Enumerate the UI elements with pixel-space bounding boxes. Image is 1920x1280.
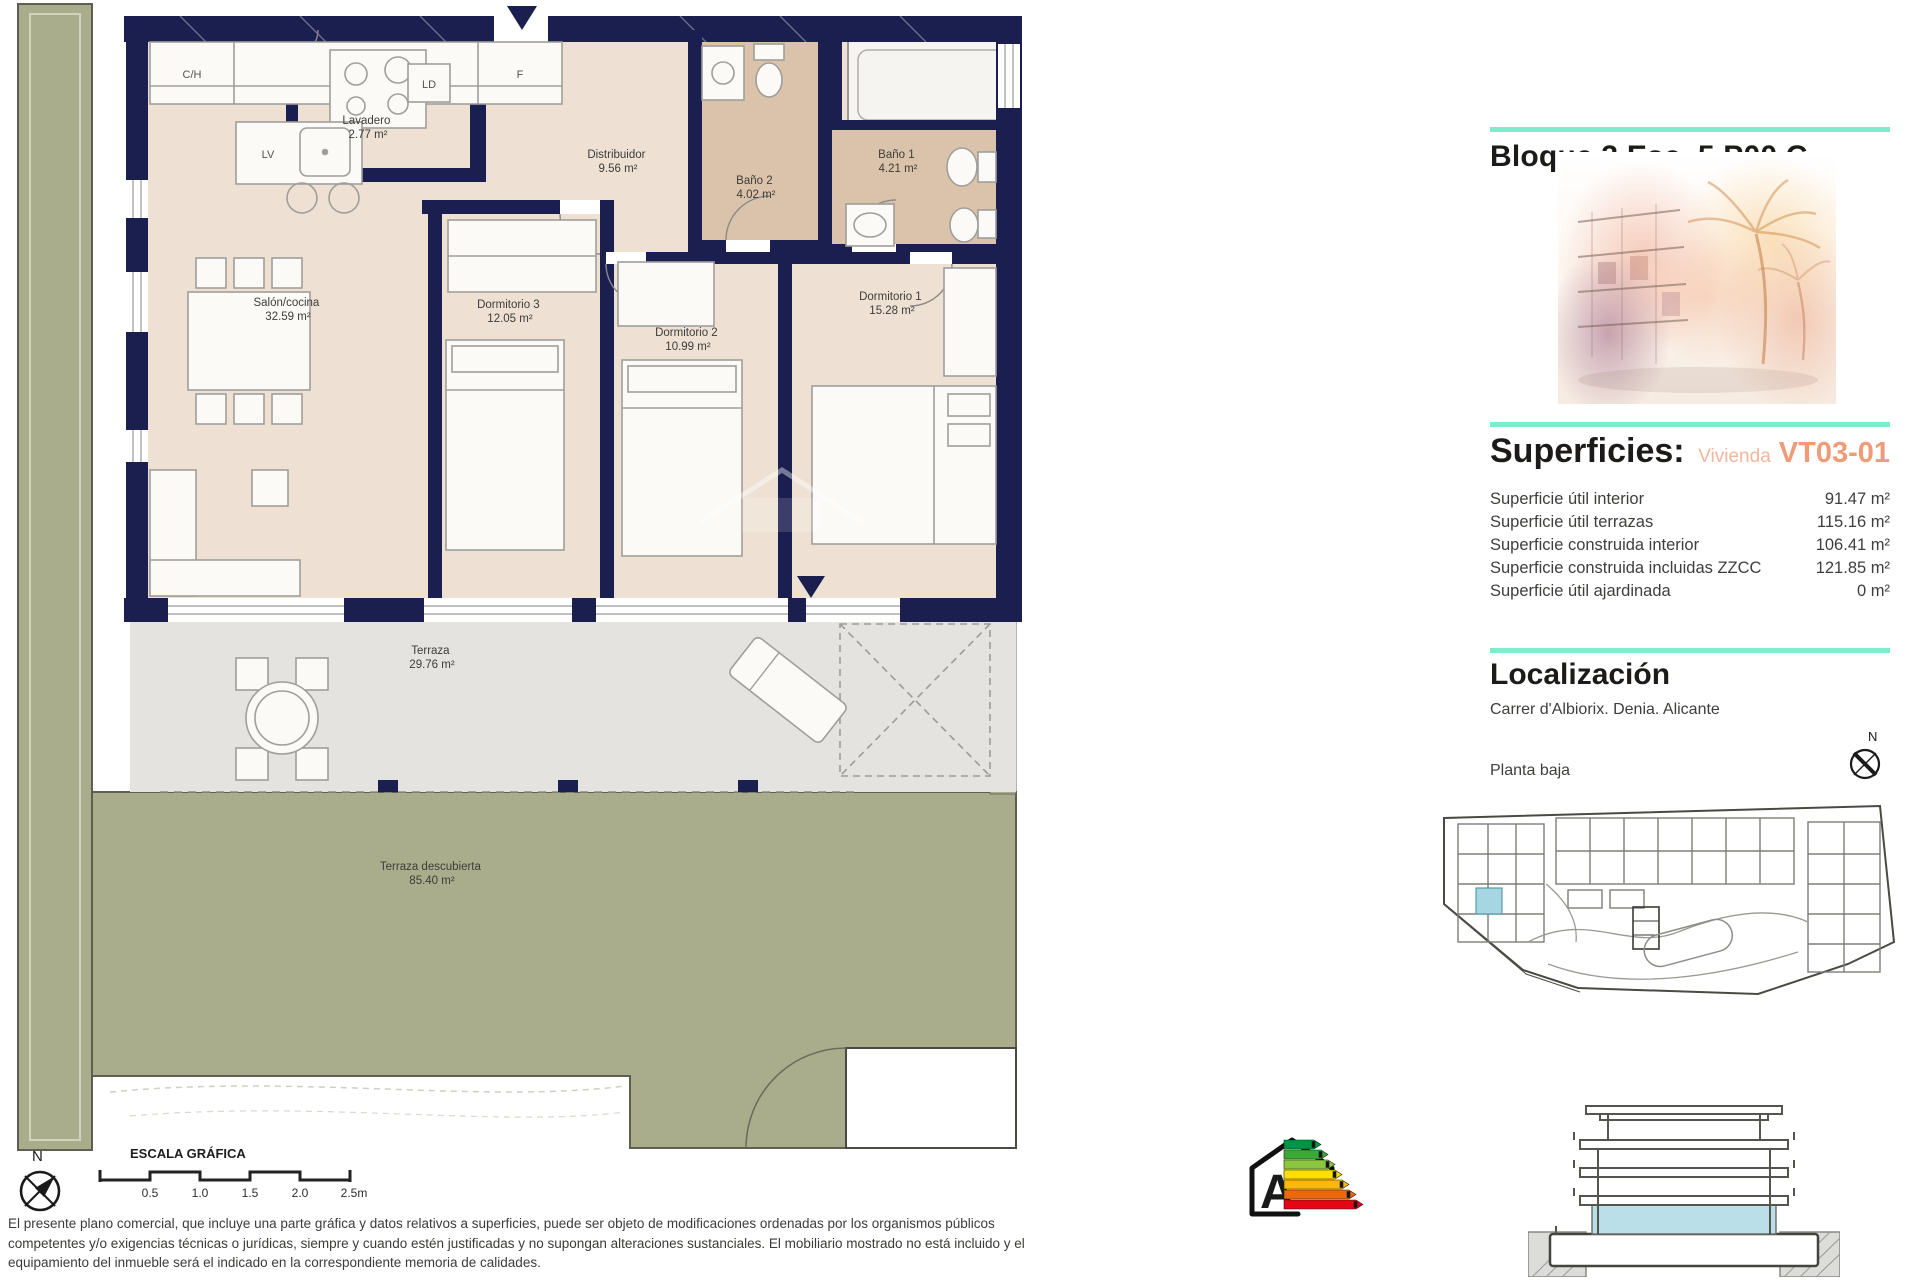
divider-superficies <box>1490 422 1890 427</box>
compass-n-label: N <box>32 1148 43 1165</box>
legal-disclaimer: El presente plano comercial, que incluye… <box>8 1214 1056 1273</box>
bath2-fixtures <box>702 44 784 100</box>
divider-top <box>1490 127 1890 132</box>
bed-dorm1 <box>812 386 996 544</box>
superficies-title: Superficies: <box>1490 432 1685 471</box>
window-right <box>998 44 1020 108</box>
building-render-image <box>1558 152 1836 404</box>
superficies-header: Superficies: Vivienda VT03-01 <box>1490 432 1890 471</box>
site-plan <box>1428 792 1910 1017</box>
superficies-row: Superficie construida incluidas ZZCC 121… <box>1490 557 1890 580</box>
vivienda-label: Vivienda <box>1698 446 1771 468</box>
kitchen-label-lv: LV <box>262 149 275 161</box>
superficies-row: Superficie útil ajardinada 0 m² <box>1490 580 1890 603</box>
floor-label: Planta baja <box>1490 762 1570 780</box>
bed-dorm3 <box>446 340 564 550</box>
scale-title: ESCALA GRÁFICA <box>130 1146 246 1161</box>
garden-notch <box>846 1048 1016 1148</box>
compass-n-label: N <box>1868 729 1877 744</box>
scale-tick: 2.0 <box>292 1186 309 1200</box>
superficies-row: Superficie útil interior 91.47 m² <box>1490 488 1890 511</box>
scale-tick: 2.5m <box>341 1186 368 1200</box>
divider-localizacion <box>1490 648 1890 653</box>
bathtub <box>848 40 1016 128</box>
section-basement <box>1550 1234 1818 1266</box>
page: Salón/cocina 32.59 m² Dormitorio 3 12.05… <box>0 0 1920 1280</box>
energy-bars <box>1284 1140 1363 1209</box>
floor-plan: Salón/cocina 32.59 m² Dormitorio 3 12.05… <box>0 0 1060 1160</box>
section-slabs <box>1580 1106 1788 1205</box>
wardrobe-dorm1 <box>944 268 996 376</box>
siteplan-pool <box>1641 916 1736 970</box>
render-sketch-overlay <box>1558 152 1836 404</box>
scale-tick: 1.0 <box>192 1186 209 1200</box>
scale-tick: 1.5 <box>242 1186 259 1200</box>
kitchen-label-ch: C/H <box>183 69 202 81</box>
vivienda-code: VT03-01 <box>1779 437 1890 470</box>
section-ground-floor-highlight <box>1592 1204 1776 1234</box>
scale-bar: ESCALA GRÁFICA 0.5 1.0 1.5 2.0 2.5m <box>60 1142 390 1204</box>
kitchen-label-ld: LD <box>422 79 436 91</box>
energy-rating-icon: A <box>1238 1128 1370 1220</box>
scale-tick: 0.5 <box>142 1186 159 1200</box>
superficies-row: Superficie construida interior 106.41 m² <box>1490 534 1890 557</box>
building-section <box>1528 1092 1840 1277</box>
highlighted-unit <box>1476 888 1502 914</box>
localizacion-title: Localización <box>1490 658 1670 692</box>
scale-bar-line <box>100 1170 350 1182</box>
terrace-area <box>130 620 1016 792</box>
compass-icon-siteplan: N <box>1838 728 1890 786</box>
dining-set <box>188 258 310 424</box>
superficies-table: Superficie útil interior 91.47 m² Superf… <box>1490 488 1890 603</box>
superficies-row: Superficie útil terrazas 115.16 m² <box>1490 511 1890 534</box>
wardrobe-dorm2 <box>618 262 714 326</box>
localizacion-address: Carrer d'Albiorix. Denia. Alicante <box>1490 701 1720 719</box>
bed-dorm2 <box>622 360 742 556</box>
kitchen-label-f: F <box>517 69 524 81</box>
